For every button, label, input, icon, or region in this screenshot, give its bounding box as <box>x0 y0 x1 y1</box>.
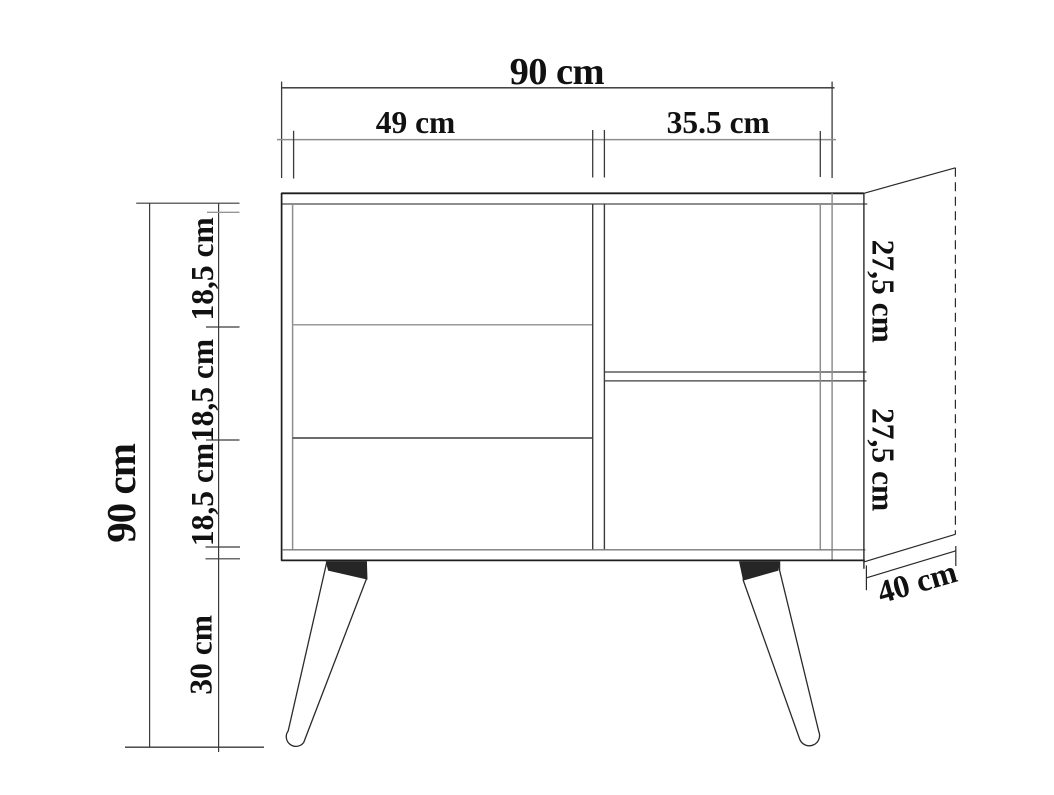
svg-text:90 cm: 90 cm <box>98 443 144 542</box>
svg-text:27,5 cm: 27,5 cm <box>866 408 901 511</box>
svg-text:35.5 cm: 35.5 cm <box>667 105 770 140</box>
svg-text:49 cm: 49 cm <box>376 105 456 140</box>
svg-text:27,5 cm: 27,5 cm <box>866 240 901 343</box>
svg-text:40 cm: 40 cm <box>873 553 961 610</box>
svg-text:18,5 cm: 18,5 cm <box>185 339 220 442</box>
svg-text:18,5 cm: 18,5 cm <box>185 217 220 320</box>
svg-text:90 cm: 90 cm <box>510 51 605 93</box>
svg-text:30 cm: 30 cm <box>183 615 218 695</box>
svg-text:18,5 cm: 18,5 cm <box>185 443 220 546</box>
